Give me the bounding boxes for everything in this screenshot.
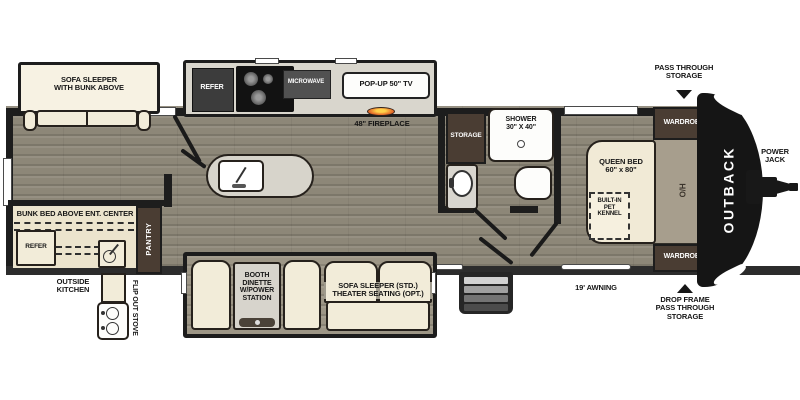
sofa-sleeper-seat [326,301,430,331]
stove-burner-icon [106,307,119,320]
sofa-arm-left [23,110,37,131]
arrow-down-icon [676,90,692,99]
power-jack-tip [789,183,798,191]
power-outlet-icon [255,320,260,325]
microwave-label: MICROWAVE [283,79,329,86]
pass-through-storage-label: PASS THROUGH STORAGE [649,64,719,81]
drop-frame-label: DROP FRAME PASS THROUGH STORAGE [647,296,723,321]
power-jack-arm [761,177,777,197]
floor-plan-diagram: SOFA SLEEPER WITH BUNK ABOVE REFER MICRO… [0,0,800,400]
entry-door-bottom [435,264,463,270]
burner-icon [263,74,273,84]
awning-label: 19' AWNING [556,284,636,292]
power-jack-cone [776,180,790,194]
sofa-cushion-divider [86,112,88,125]
sofa-arm-right [137,110,151,131]
stove-knob-icon [101,311,105,315]
refer-kitchen-label: REFER [192,84,232,92]
faucet-base-icon [232,184,246,188]
kitchen-slide-vent-1 [255,58,279,64]
dinette-slide-window-left [181,272,187,294]
step-tread [464,286,508,293]
burner-icon [244,72,258,86]
burner-icon [251,90,266,105]
awning-roller [561,264,631,270]
toilet-icon [514,166,552,200]
dinette-bench-left [191,260,231,330]
pantry-label: PANTRY [145,209,153,269]
outside-kitchen-label: OUTSIDE KITCHEN [42,278,104,295]
refer-bunk-label: REFER [16,243,56,250]
step-tread [464,295,508,302]
bath-wall-bottom-right [510,206,538,213]
arrow-up-icon [677,284,693,293]
overhead-label: O/H [680,170,689,210]
sofa-sleeper-bunk-label: SOFA SLEEPER WITH BUNK ABOVE [24,76,154,93]
fireplace-flame-icon [367,107,395,116]
bath-wall-left [438,110,445,212]
sofa-std-label: SOFA SLEEPER (STD.) THEATER SEATING (OPT… [324,282,432,299]
power-jack-label: POWER JACK [752,148,798,165]
step-tread [464,277,508,284]
shower-drain-icon [517,140,525,148]
stove-burner-icon [106,322,119,335]
vanity-faucet-icon [449,178,454,188]
window-bedroom-top [564,106,638,115]
stove-knob-icon [101,326,105,330]
brand-logo: OUTBACK [721,120,736,260]
hall-wall [164,174,172,207]
bunk-ent-center-label: BUNK BED ABOVE ENT. CENTER [10,210,140,218]
queen-bed-label: QUEEN BED 60" x 80" [588,158,654,175]
step-tread [464,304,508,311]
booth-dinette-label: BOOTH DINETTE W/POWER STATION [233,272,281,303]
dinette-bench-right [283,260,321,330]
pet-kennel-label: BUILT-IN PET KENNEL [589,198,630,218]
bedroom-wall [554,110,561,224]
shower-label: SHOWER 30" X 40" [488,116,554,131]
window-rear-wall [3,158,12,206]
flip-out-panel [101,273,126,303]
kitchen-slide-vent-2 [335,58,357,64]
flip-out-stove-label: FLIP OUT STOVE [130,276,138,340]
fireplace-label: 48" FIREPLACE [348,120,416,128]
vanity-sink-icon [451,170,473,197]
bath-storage-label: STORAGE [446,132,486,139]
bunk-dashes-2 [56,246,100,255]
power-jack-icon [746,170,762,204]
popup-tv-label: POP-UP 50" TV [342,80,430,88]
